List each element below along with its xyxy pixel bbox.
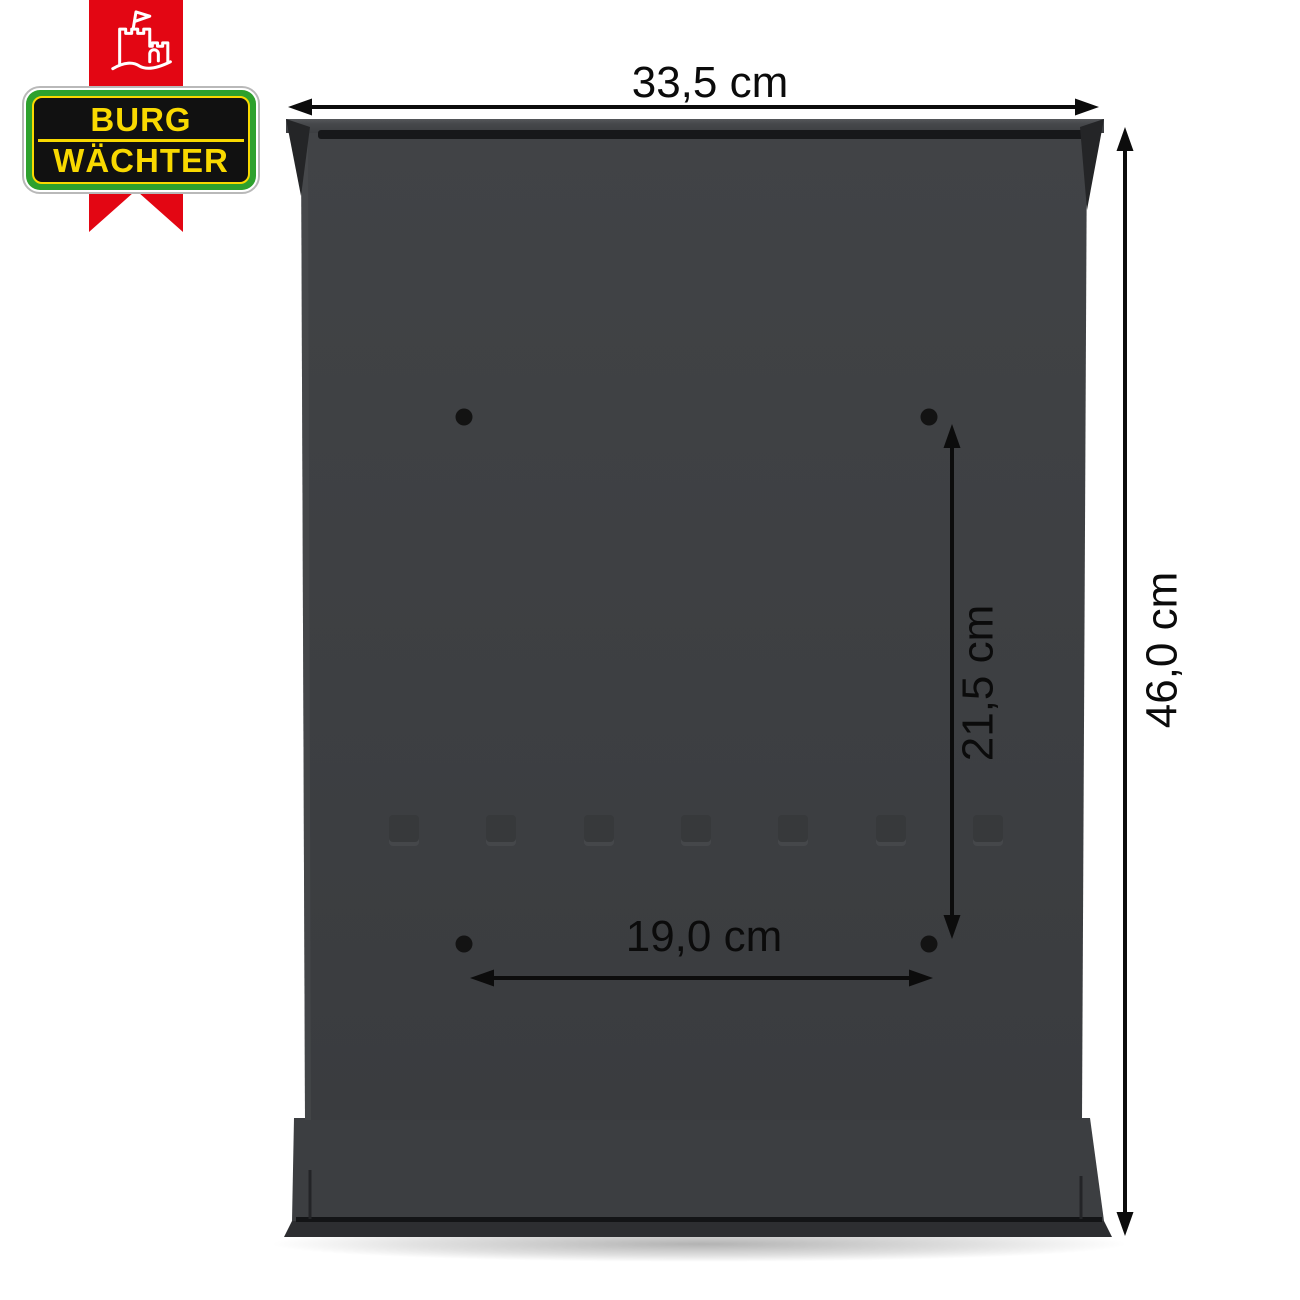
arrowhead-left-icon — [288, 99, 312, 116]
badge-green-frame: BURG WÄCHTER — [26, 90, 256, 190]
lid-groove — [318, 130, 1090, 139]
badge-field: BURG WÄCHTER — [32, 96, 250, 184]
dimension-label-overall-width: 33,5 cm — [632, 58, 789, 107]
embossed-slot — [486, 815, 516, 846]
dimension-label-hole-spacing-vertical: 21,5 cm — [953, 605, 1002, 762]
embossed-slot — [389, 815, 419, 846]
dimension-overall-width: 33,5 cm — [288, 58, 1099, 116]
embossed-slot — [681, 815, 711, 846]
embossed-slot — [973, 815, 1003, 846]
mailbox-bottom-band — [284, 1221, 1112, 1237]
mounting-hole — [456, 936, 473, 953]
brand-name-line1: BURG — [34, 102, 248, 138]
brand-badge: BURG WÄCHTER — [22, 86, 260, 194]
mailbox-bottom-skirt — [292, 1118, 1104, 1221]
arrowhead-up-icon — [1117, 127, 1134, 151]
mailbox-diagram: 33,5 cm 46,0 cm 21,5 cm 19,0 cm — [0, 0, 1300, 1300]
mounting-hole — [921, 936, 938, 953]
mailbox-bottom-groove — [296, 1217, 1102, 1222]
mounting-hole — [456, 409, 473, 426]
dimension-label-hole-spacing-horizontal: 19,0 cm — [626, 912, 783, 961]
dimension-label-overall-height: 46,0 cm — [1137, 572, 1186, 729]
product-dimension-diagram: 33,5 cm 46,0 cm 21,5 cm 19,0 cm — [0, 0, 1300, 1300]
embossed-slot — [778, 815, 808, 846]
arrowhead-right-icon — [1075, 99, 1099, 116]
embossed-slot — [584, 815, 614, 846]
castle-icon — [93, 6, 179, 90]
arrowhead-down-icon — [1117, 1212, 1134, 1236]
mounting-hole — [921, 409, 938, 426]
brand-name-line2: WÄCHTER — [34, 143, 248, 179]
dimension-overall-height: 46,0 cm — [1117, 127, 1187, 1236]
embossed-slot — [876, 815, 906, 846]
